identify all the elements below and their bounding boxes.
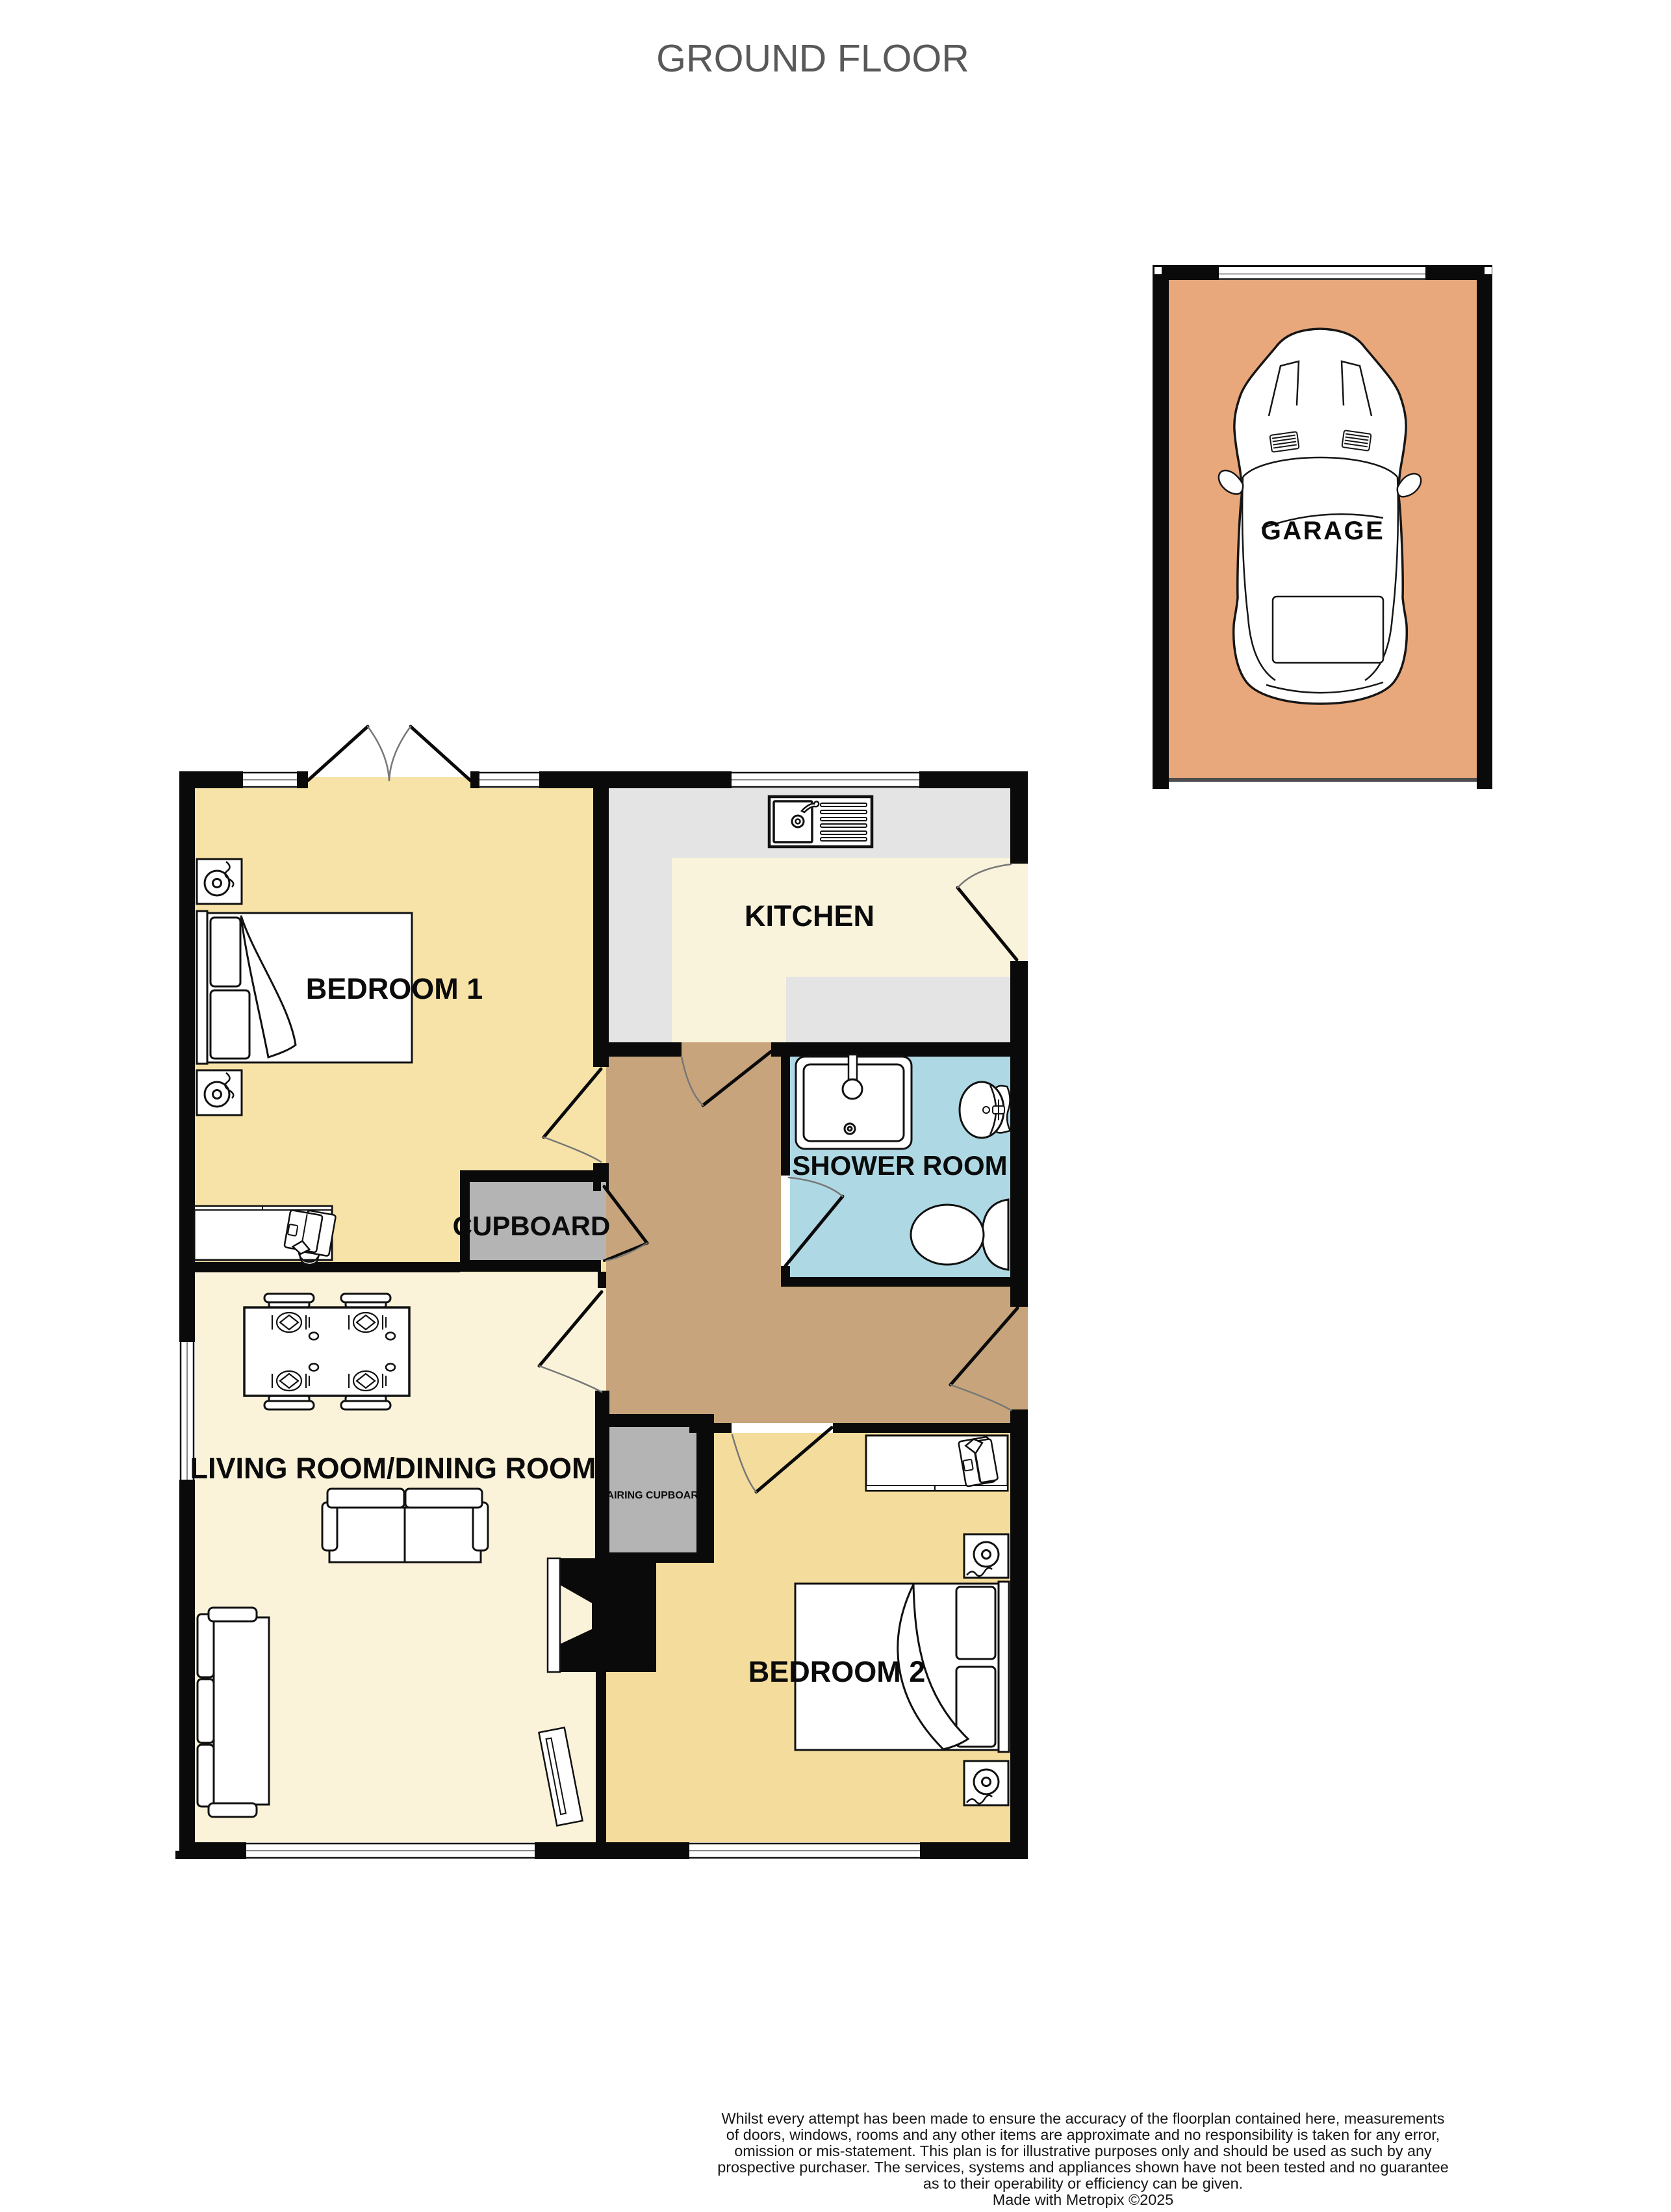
svg-text:Made with Metropix ©2025: Made with Metropix ©2025 bbox=[993, 2191, 1174, 2208]
svg-text:GARAGE: GARAGE bbox=[1261, 517, 1385, 545]
svg-text:omission or mis-statement. Thi: omission or mis-statement. This plan is … bbox=[734, 2142, 1432, 2159]
svg-text:BEDROOM 2: BEDROOM 2 bbox=[748, 1655, 926, 1688]
svg-text:of doors, windows, rooms and a: of doors, windows, rooms and any other i… bbox=[726, 2126, 1440, 2143]
svg-text:AIRING CUPBOARD: AIRING CUPBOARD bbox=[607, 1490, 706, 1501]
svg-text:LIVING ROOM/DINING ROOM: LIVING ROOM/DINING ROOM bbox=[190, 1452, 596, 1485]
svg-text:GROUND FLOOR: GROUND FLOOR bbox=[656, 37, 969, 80]
svg-text:prospective purchaser. The ser: prospective purchaser. The services, sys… bbox=[717, 2159, 1449, 2176]
svg-text:SHOWER ROOM: SHOWER ROOM bbox=[792, 1150, 1007, 1181]
svg-text:Whilst every attempt has been: Whilst every attempt has been made to en… bbox=[722, 2110, 1445, 2127]
svg-text:BEDROOM 1: BEDROOM 1 bbox=[306, 972, 483, 1005]
svg-text:KITCHEN: KITCHEN bbox=[745, 899, 874, 932]
svg-text:as to their operability or eff: as to their operability or efficiency ca… bbox=[923, 2175, 1243, 2192]
svg-text:CUPBOARD: CUPBOARD bbox=[453, 1211, 611, 1241]
